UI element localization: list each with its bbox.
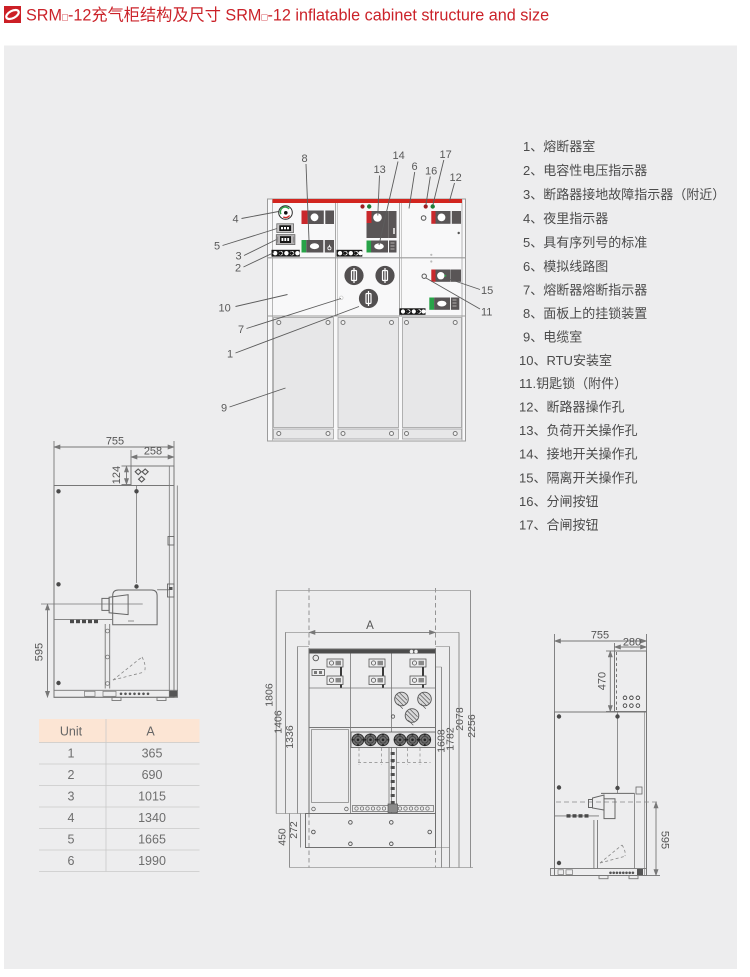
svg-text:8: 8 [302, 153, 308, 165]
svg-text:280: 280 [623, 637, 641, 649]
svg-text:1406: 1406 [273, 710, 285, 734]
svg-text:7、熔断器熔断指示器: 7、熔断器熔断指示器 [523, 283, 647, 298]
svg-text:755: 755 [591, 630, 609, 642]
svg-text:1: 1 [68, 747, 75, 761]
svg-text:2078: 2078 [454, 707, 466, 731]
svg-text:14: 14 [393, 150, 405, 162]
svg-text:16: 16 [425, 166, 437, 178]
svg-text:272: 272 [288, 821, 300, 839]
svg-text:450: 450 [277, 828, 289, 846]
svg-text:365: 365 [142, 747, 163, 761]
svg-text:4、夜里指示器: 4、夜里指示器 [523, 211, 608, 226]
svg-text:8、面板上的挂锁装置: 8、面板上的挂锁装置 [523, 306, 647, 321]
svg-text:15、隔离开关操作孔: 15、隔离开关操作孔 [519, 471, 637, 486]
svg-text:16、分闸按钮: 16、分闸按钮 [519, 494, 598, 509]
svg-text:5、具有序列号的标准: 5、具有序列号的标准 [523, 235, 647, 250]
svg-text:1、熔断器室: 1、熔断器室 [523, 139, 595, 154]
svg-text:1336: 1336 [284, 725, 296, 749]
svg-text:4: 4 [233, 214, 239, 226]
svg-text:5: 5 [68, 833, 75, 847]
svg-text:3、断路器接地故障指示器（附近）: 3、断路器接地故障指示器（附近） [523, 187, 725, 202]
svg-text:6: 6 [412, 161, 418, 173]
svg-text:10、RTU安装室: 10、RTU安装室 [519, 353, 612, 368]
svg-text:1340: 1340 [138, 811, 166, 825]
svg-text:690: 690 [142, 768, 163, 782]
svg-text:2256: 2256 [466, 714, 478, 738]
svg-text:5: 5 [214, 241, 220, 253]
svg-text:1: 1 [227, 349, 233, 361]
svg-text:258: 258 [144, 446, 162, 458]
svg-text:1806: 1806 [264, 683, 276, 707]
svg-text:595: 595 [34, 643, 46, 661]
svg-text:17: 17 [440, 149, 452, 161]
svg-text:3: 3 [236, 251, 242, 263]
svg-text:755: 755 [106, 436, 124, 448]
svg-text:12、断路器操作孔: 12、断路器操作孔 [519, 400, 624, 415]
svg-text:6、模拟线路图: 6、模拟线路图 [523, 259, 608, 274]
svg-text:3: 3 [68, 790, 75, 804]
svg-text:SRM□-12充气柜结构及尺寸 SRM□-12 inflat: SRM□-12充气柜结构及尺寸 SRM□-12 inflatable cabin… [26, 7, 549, 25]
svg-text:2、电容性电压指示器: 2、电容性电压指示器 [523, 163, 647, 178]
svg-text:11.钥匙锁（附件）: 11.钥匙锁（附件） [519, 376, 627, 391]
svg-text:470: 470 [597, 672, 609, 690]
svg-text:15: 15 [481, 285, 493, 297]
svg-text:14、接地开关操作孔: 14、接地开关操作孔 [519, 447, 637, 462]
svg-text:6: 6 [68, 854, 75, 868]
svg-text:1665: 1665 [138, 833, 166, 847]
svg-text:1990: 1990 [138, 854, 166, 868]
svg-text:2: 2 [68, 768, 75, 782]
svg-text:124: 124 [111, 466, 123, 484]
svg-text:2: 2 [235, 263, 241, 275]
svg-text:Unit: Unit [60, 725, 83, 739]
svg-text:13、负荷开关操作孔: 13、负荷开关操作孔 [519, 423, 637, 438]
svg-text:13: 13 [374, 164, 386, 176]
svg-text:10: 10 [219, 303, 231, 315]
svg-text:1015: 1015 [138, 790, 166, 804]
svg-text:A: A [366, 620, 374, 632]
svg-text:4: 4 [68, 811, 75, 825]
svg-text:9: 9 [221, 403, 227, 415]
svg-text:9、电缆室: 9、电缆室 [523, 330, 582, 345]
svg-text:11: 11 [481, 307, 492, 319]
svg-text:7: 7 [238, 324, 244, 336]
svg-text:12: 12 [450, 172, 462, 184]
svg-text:A: A [146, 725, 155, 739]
svg-text:595: 595 [659, 831, 671, 849]
svg-text:17、合闸按钮: 17、合闸按钮 [519, 518, 598, 533]
